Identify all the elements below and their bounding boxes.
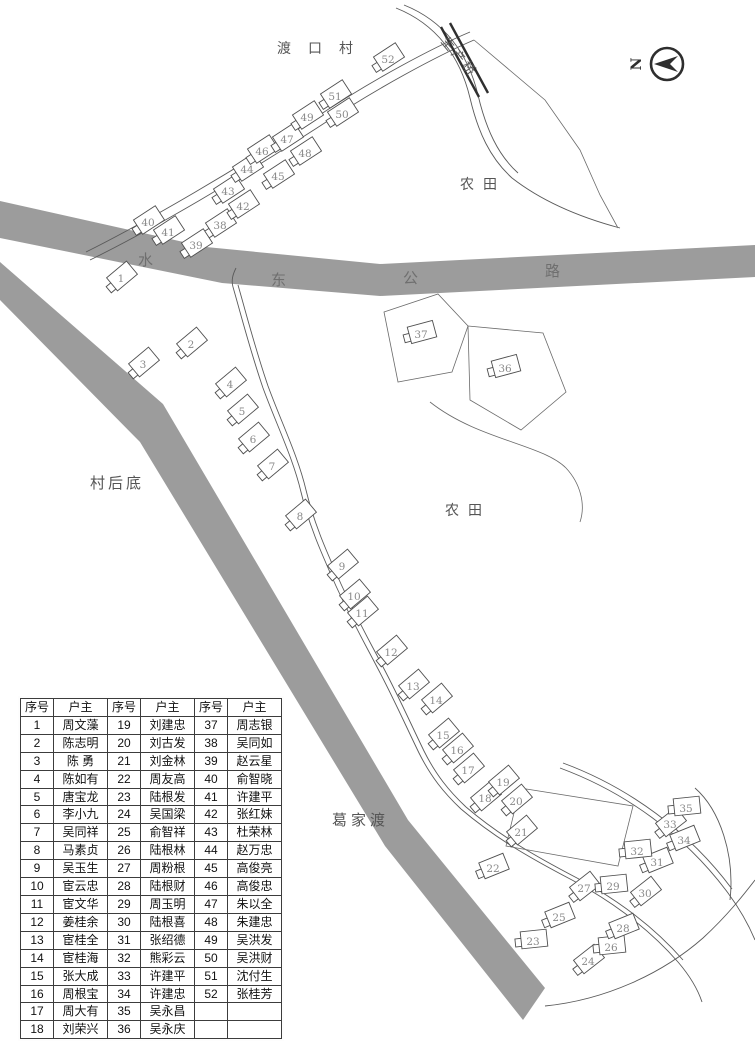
- householder-cell: 赵万忠: [228, 842, 282, 860]
- table-row: 3陈 勇21刘金林39赵云星: [21, 752, 282, 770]
- building-1: 1: [106, 261, 137, 293]
- householder-cell: 杜荣林: [228, 824, 282, 842]
- building-5: 5: [227, 394, 258, 426]
- building-number: 7: [269, 461, 276, 473]
- building-number: 33: [663, 819, 676, 831]
- farmland-label-top: 农田: [460, 174, 506, 194]
- building-35: 35: [668, 796, 701, 816]
- serial-cell: 21: [108, 752, 141, 770]
- building-number: 35: [679, 803, 692, 815]
- householder-cell: 周友高: [141, 770, 195, 788]
- householder-cell: 姜桂余: [54, 913, 108, 931]
- building-number: 27: [577, 883, 590, 895]
- householder-cell: 张绍德: [141, 931, 195, 949]
- householder-cell: 俞智祥: [141, 824, 195, 842]
- building-29: 29: [595, 874, 628, 894]
- householder-cell: 宦桂全: [54, 931, 108, 949]
- building-2: 2: [176, 327, 207, 359]
- householder-cell: 吴玉生: [54, 860, 108, 878]
- building-number: 6: [250, 434, 257, 446]
- serial-cell: 11: [21, 895, 54, 913]
- building-number: 38: [213, 220, 226, 232]
- building-number: 23: [526, 936, 539, 948]
- householder-cell: 吴永昌: [141, 1003, 195, 1021]
- householder-cell: 刘荣兴: [54, 1021, 108, 1039]
- householder-cell: 刘金林: [141, 752, 195, 770]
- householder-cell: 周大有: [54, 1003, 108, 1021]
- table-body: 1周文藻19刘建忠37周志银2陈志明20刘古发38吴同如3陈 勇21刘金林39赵…: [21, 716, 282, 1038]
- serial-cell: 1: [21, 716, 54, 734]
- village-rear-label: 村后底: [90, 472, 144, 493]
- village-name-label: 渡口村: [277, 38, 370, 58]
- serial-cell: [195, 1003, 228, 1021]
- building-number: 50: [335, 109, 348, 121]
- serial-cell: 46: [195, 878, 228, 896]
- householder-cell: 吴同如: [228, 734, 282, 752]
- table-row: 2陈志明20刘古发38吴同如: [21, 734, 282, 752]
- householder-cell: 李小九: [54, 806, 108, 824]
- householder-cell: 周文藻: [54, 716, 108, 734]
- building-number: 18: [478, 793, 491, 805]
- serial-cell: 6: [21, 806, 54, 824]
- serial-cell: 14: [21, 949, 54, 967]
- serial-header: 序号: [195, 699, 228, 717]
- building-25: 25: [542, 902, 576, 928]
- householder-cell: 张大成: [54, 967, 108, 985]
- table-row: 13宦桂全31张绍德49吴洪发: [21, 931, 282, 949]
- table-row: 17周大有35吴永昌: [21, 1003, 282, 1021]
- serial-cell: 43: [195, 824, 228, 842]
- serial-cell: 4: [21, 770, 54, 788]
- householder-cell: 陆根喜: [141, 913, 195, 931]
- table-row: 14宦桂海32熊彩云50吴洪财: [21, 949, 282, 967]
- building-32: 32: [619, 839, 652, 859]
- building-number: 2: [188, 339, 195, 351]
- building-number: 24: [581, 956, 595, 968]
- table-row: 15张大成33许建平51沈付生: [21, 967, 282, 985]
- building-37: 37: [403, 320, 437, 343]
- table-row: 6李小九24吴国梁42张红妹: [21, 806, 282, 824]
- building-30: 30: [630, 876, 662, 907]
- building-8: 8: [285, 499, 316, 531]
- serial-header: 序号: [108, 699, 141, 717]
- building-number: 41: [161, 227, 174, 239]
- serial-cell: 5: [21, 788, 54, 806]
- serial-cell: 37: [195, 716, 228, 734]
- building-12: 12: [376, 635, 407, 667]
- householder-cell: 宦文华: [54, 895, 108, 913]
- farmland-label-mid: 农田: [445, 500, 491, 520]
- householder-cell: 宦桂海: [54, 949, 108, 967]
- householder-cell: 吴国梁: [141, 806, 195, 824]
- road-char-shui: 水: [138, 249, 153, 270]
- serial-cell: 26: [108, 842, 141, 860]
- building-23: 23: [515, 929, 548, 949]
- table-row: 12姜桂余30陆根喜48朱建忠: [21, 913, 282, 931]
- building-number: 19: [496, 777, 509, 789]
- building-number: 31: [650, 857, 663, 869]
- serial-cell: 8: [21, 842, 54, 860]
- serial-cell: 29: [108, 895, 141, 913]
- building-6: 6: [238, 422, 269, 454]
- householder-cell: 周志银: [228, 716, 282, 734]
- householder-cell: 俞智晓: [228, 770, 282, 788]
- householder-cell: 唐宝龙: [54, 788, 108, 806]
- building-number: 43: [221, 186, 234, 198]
- serial-cell: 2: [21, 734, 54, 752]
- building-number: 4: [227, 379, 234, 391]
- building-number: 1: [118, 273, 125, 285]
- building-number: 45: [271, 171, 284, 183]
- householder-cell: 高俊忠: [228, 878, 282, 896]
- serial-cell: 34: [108, 985, 141, 1003]
- north-arrow-icon: N: [629, 48, 683, 80]
- householder-cell: 沈付生: [228, 967, 282, 985]
- building-number: 16: [450, 745, 464, 757]
- building-number: 40: [141, 217, 154, 229]
- building-number: 13: [406, 681, 419, 693]
- household-table-panel: 序号户主序号户主序号户主 1周文藻19刘建忠37周志银2陈志明20刘古发38吴同…: [18, 696, 284, 1041]
- building-number: 17: [461, 765, 474, 777]
- building-number: 46: [255, 146, 269, 158]
- householder-cell: 陆根财: [141, 878, 195, 896]
- householder-header: 户主: [54, 699, 108, 717]
- building-number: 14: [429, 695, 443, 707]
- building-number: 36: [498, 363, 512, 375]
- householder-cell: 朱以全: [228, 895, 282, 913]
- householder-cell: 周粉根: [141, 860, 195, 878]
- building-number: 21: [514, 827, 527, 839]
- building-number: 42: [236, 201, 249, 213]
- serial-cell: 24: [108, 806, 141, 824]
- serial-cell: 27: [108, 860, 141, 878]
- building-number: 34: [677, 835, 691, 847]
- building-number: 25: [552, 912, 565, 924]
- building-number: 22: [486, 863, 499, 875]
- householder-cell: 陈志明: [54, 734, 108, 752]
- serial-cell: 35: [108, 1003, 141, 1021]
- householder-cell: 刘建忠: [141, 716, 195, 734]
- serial-cell: 10: [21, 878, 54, 896]
- building-36: 36: [487, 354, 521, 377]
- building-4: 4: [215, 367, 246, 399]
- building-number: 12: [384, 647, 397, 659]
- building-49: 49: [291, 101, 324, 131]
- serial-cell: 33: [108, 967, 141, 985]
- serial-cell: 50: [195, 949, 228, 967]
- building-number: 20: [509, 796, 522, 808]
- householder-cell: 吴洪财: [228, 949, 282, 967]
- table-header: 序号户主序号户主序号户主: [21, 699, 282, 717]
- building-21: 21: [506, 815, 537, 847]
- householder-header: 户主: [141, 699, 195, 717]
- serial-cell: 23: [108, 788, 141, 806]
- table-row: 8马素贞26陆根林44赵万忠: [21, 842, 282, 860]
- table-row: 5唐宝龙23陆根发41许建平: [21, 788, 282, 806]
- serial-cell: 47: [195, 895, 228, 913]
- village-plot-map: 1234567891011121314151617181920212223242…: [0, 0, 755, 1054]
- serial-cell: 52: [195, 985, 228, 1003]
- building-52: 52: [372, 43, 405, 73]
- building-number: 48: [298, 148, 311, 160]
- serial-cell: 36: [108, 1021, 141, 1039]
- building-number: 28: [616, 923, 629, 935]
- householder-cell: 周根宝: [54, 985, 108, 1003]
- householder-cell: 周玉明: [141, 895, 195, 913]
- serial-cell: 22: [108, 770, 141, 788]
- householder-cell: 吴洪发: [228, 931, 282, 949]
- householder-header: 户主: [228, 699, 282, 717]
- serial-cell: 20: [108, 734, 141, 752]
- householder-cell: 吴永庆: [141, 1021, 195, 1039]
- householder-cell: 宦云忠: [54, 878, 108, 896]
- building-number: 30: [638, 888, 651, 900]
- serial-cell: 19: [108, 716, 141, 734]
- building-number: 10: [347, 591, 360, 603]
- building-number: 26: [604, 942, 618, 954]
- road-char-dong: 东: [271, 269, 286, 290]
- householder-cell: [228, 1003, 282, 1021]
- serial-cell: 25: [108, 824, 141, 842]
- householder-cell: 赵云星: [228, 752, 282, 770]
- householder-cell: 陆根林: [141, 842, 195, 860]
- building-number: 49: [300, 112, 313, 124]
- river-channel: [396, 5, 620, 228]
- building-number: 39: [189, 240, 202, 252]
- table-row: 9吴玉生27周粉根45高俊亮: [21, 860, 282, 878]
- serial-cell: 41: [195, 788, 228, 806]
- table-row: 1周文藻19刘建忠37周志银: [21, 716, 282, 734]
- building-number: 32: [630, 846, 643, 858]
- serial-cell: 31: [108, 931, 141, 949]
- building-number: 52: [381, 54, 394, 66]
- serial-cell: 18: [21, 1021, 54, 1039]
- building-45: 45: [262, 160, 295, 190]
- serial-cell: 44: [195, 842, 228, 860]
- serial-cell: 13: [21, 931, 54, 949]
- serial-cell: 28: [108, 878, 141, 896]
- serial-cell: 15: [21, 967, 54, 985]
- serial-cell: 17: [21, 1003, 54, 1021]
- building-number: 44: [240, 164, 254, 176]
- building-number: 47: [280, 134, 293, 146]
- serial-cell: 3: [21, 752, 54, 770]
- householder-cell: 马素贞: [54, 842, 108, 860]
- serial-cell: 39: [195, 752, 228, 770]
- building-number: 37: [414, 329, 427, 341]
- table-row: 16周根宝34许建忠52张桂芳: [21, 985, 282, 1003]
- householder-cell: 刘古发: [141, 734, 195, 752]
- householder-cell: 陈 勇: [54, 752, 108, 770]
- building-9: 9: [327, 549, 358, 581]
- table-row: 7吴同祥25俞智祥43杜荣林: [21, 824, 282, 842]
- householder-cell: 许建平: [228, 788, 282, 806]
- road-char-gong: 公: [403, 267, 418, 288]
- serial-cell: 9: [21, 860, 54, 878]
- building-7: 7: [257, 449, 288, 481]
- householder-cell: 张红妹: [228, 806, 282, 824]
- householder-cell: 许建平: [141, 967, 195, 985]
- building-number: 15: [436, 730, 449, 742]
- householder-cell: 熊彩云: [141, 949, 195, 967]
- table-row: 10宦云忠28陆根财46高俊忠: [21, 878, 282, 896]
- serial-header: 序号: [21, 699, 54, 717]
- building-28: 28: [606, 913, 640, 939]
- road-char-lu: 路: [545, 260, 560, 281]
- building-number: 11: [355, 608, 368, 620]
- building-number: 3: [140, 359, 147, 371]
- north-label: N: [629, 57, 645, 70]
- table-row: 11宦文华29周玉明47朱以全: [21, 895, 282, 913]
- serial-cell: 12: [21, 913, 54, 931]
- building-number: 51: [328, 91, 341, 103]
- householder-cell: 张桂芳: [228, 985, 282, 1003]
- building-3: 3: [128, 347, 159, 379]
- serial-cell: 48: [195, 913, 228, 931]
- building-number: 8: [297, 511, 304, 523]
- serial-cell: 49: [195, 931, 228, 949]
- building-number: 9: [339, 561, 346, 573]
- household-table: 序号户主序号户主序号户主 1周文藻19刘建忠37周志银2陈志明20刘古发38吴同…: [20, 698, 282, 1039]
- householder-cell: 陆根发: [141, 788, 195, 806]
- serial-cell: 7: [21, 824, 54, 842]
- householder-cell: [228, 1021, 282, 1039]
- householder-cell: 许建忠: [141, 985, 195, 1003]
- serial-cell: 32: [108, 949, 141, 967]
- householder-cell: 陈如有: [54, 770, 108, 788]
- serial-cell: [195, 1021, 228, 1039]
- serial-cell: 30: [108, 913, 141, 931]
- serial-cell: 42: [195, 806, 228, 824]
- ferry-label: 葛家渡: [332, 809, 389, 830]
- table-row: 4陈如有22周友高40俞智晓: [21, 770, 282, 788]
- building-number: 5: [239, 406, 246, 418]
- householder-cell: 高俊亮: [228, 860, 282, 878]
- serial-cell: 40: [195, 770, 228, 788]
- serial-cell: 16: [21, 985, 54, 1003]
- building-number: 29: [606, 881, 619, 893]
- building-14: 14: [421, 683, 452, 715]
- serial-cell: 51: [195, 967, 228, 985]
- building-22: 22: [476, 853, 510, 879]
- building-13: 13: [398, 669, 429, 701]
- table-row: 18刘荣兴36吴永庆: [21, 1021, 282, 1039]
- householder-cell: 吴同祥: [54, 824, 108, 842]
- householder-cell: 朱建忠: [228, 913, 282, 931]
- serial-cell: 38: [195, 734, 228, 752]
- serial-cell: 45: [195, 860, 228, 878]
